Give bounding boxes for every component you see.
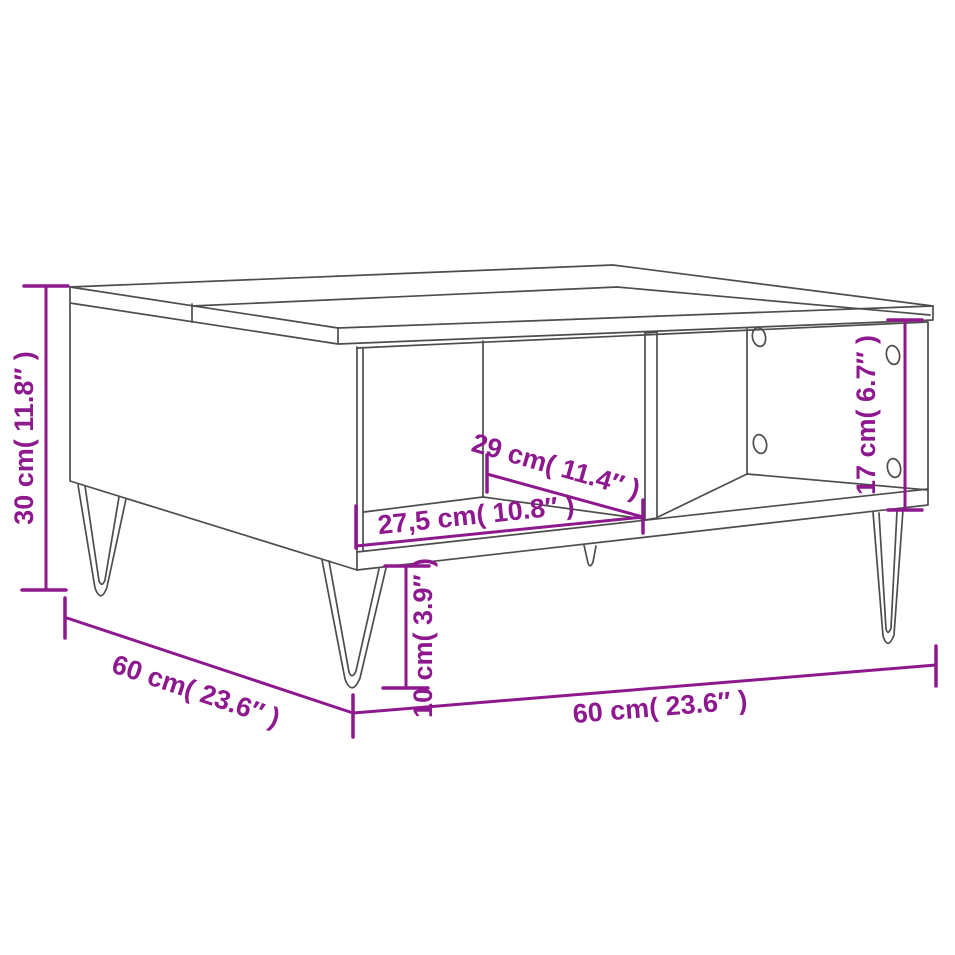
dimension-annotations: 30 cm( 11.8″ ) 60 cm( 23.6″ ) 60 cm( 23.… [9, 286, 936, 737]
dimension-diagram: 30 cm( 11.8″ ) 60 cm( 23.6″ ) 60 cm( 23.… [0, 0, 955, 955]
screw-hole [886, 457, 903, 478]
dimension-overall-depth: 60 cm( 23.6″ ) [65, 598, 353, 733]
dimension-label-compartment-height: 17 cm( 6.7″ ) [851, 335, 881, 495]
hairpin-leg-front [322, 560, 386, 688]
table-drawing [70, 265, 933, 688]
diagram-canvas: 30 cm( 11.8″ ) 60 cm( 23.6″ ) 60 cm( 23.… [0, 0, 955, 955]
dimension-label-overall-height: 30 cm( 11.8″ ) [9, 351, 39, 525]
screw-hole [752, 433, 769, 454]
dimension-overall-height: 30 cm( 11.8″ ) [9, 286, 68, 590]
center-divider [645, 332, 657, 520]
hairpin-leg-back-tip [584, 545, 596, 566]
hairpin-leg-right [873, 510, 903, 643]
tabletop-surface [70, 265, 933, 328]
dimension-tick [353, 646, 936, 737]
dimension-compartment-height: 17 cm( 6.7″ ) [851, 320, 922, 510]
dimension-overall-width: 60 cm( 23.6″ ) [353, 646, 936, 737]
dimension-compartment-width: 27,5 cm( 10.8″ ) [356, 490, 643, 548]
hairpin-leg-back-left [78, 485, 126, 596]
screw-hole [885, 344, 902, 365]
dimension-leg-height: 10 cm( 3.9″ ) [383, 558, 438, 718]
dimension-label-leg-height: 10 cm( 3.9″ ) [408, 558, 438, 718]
